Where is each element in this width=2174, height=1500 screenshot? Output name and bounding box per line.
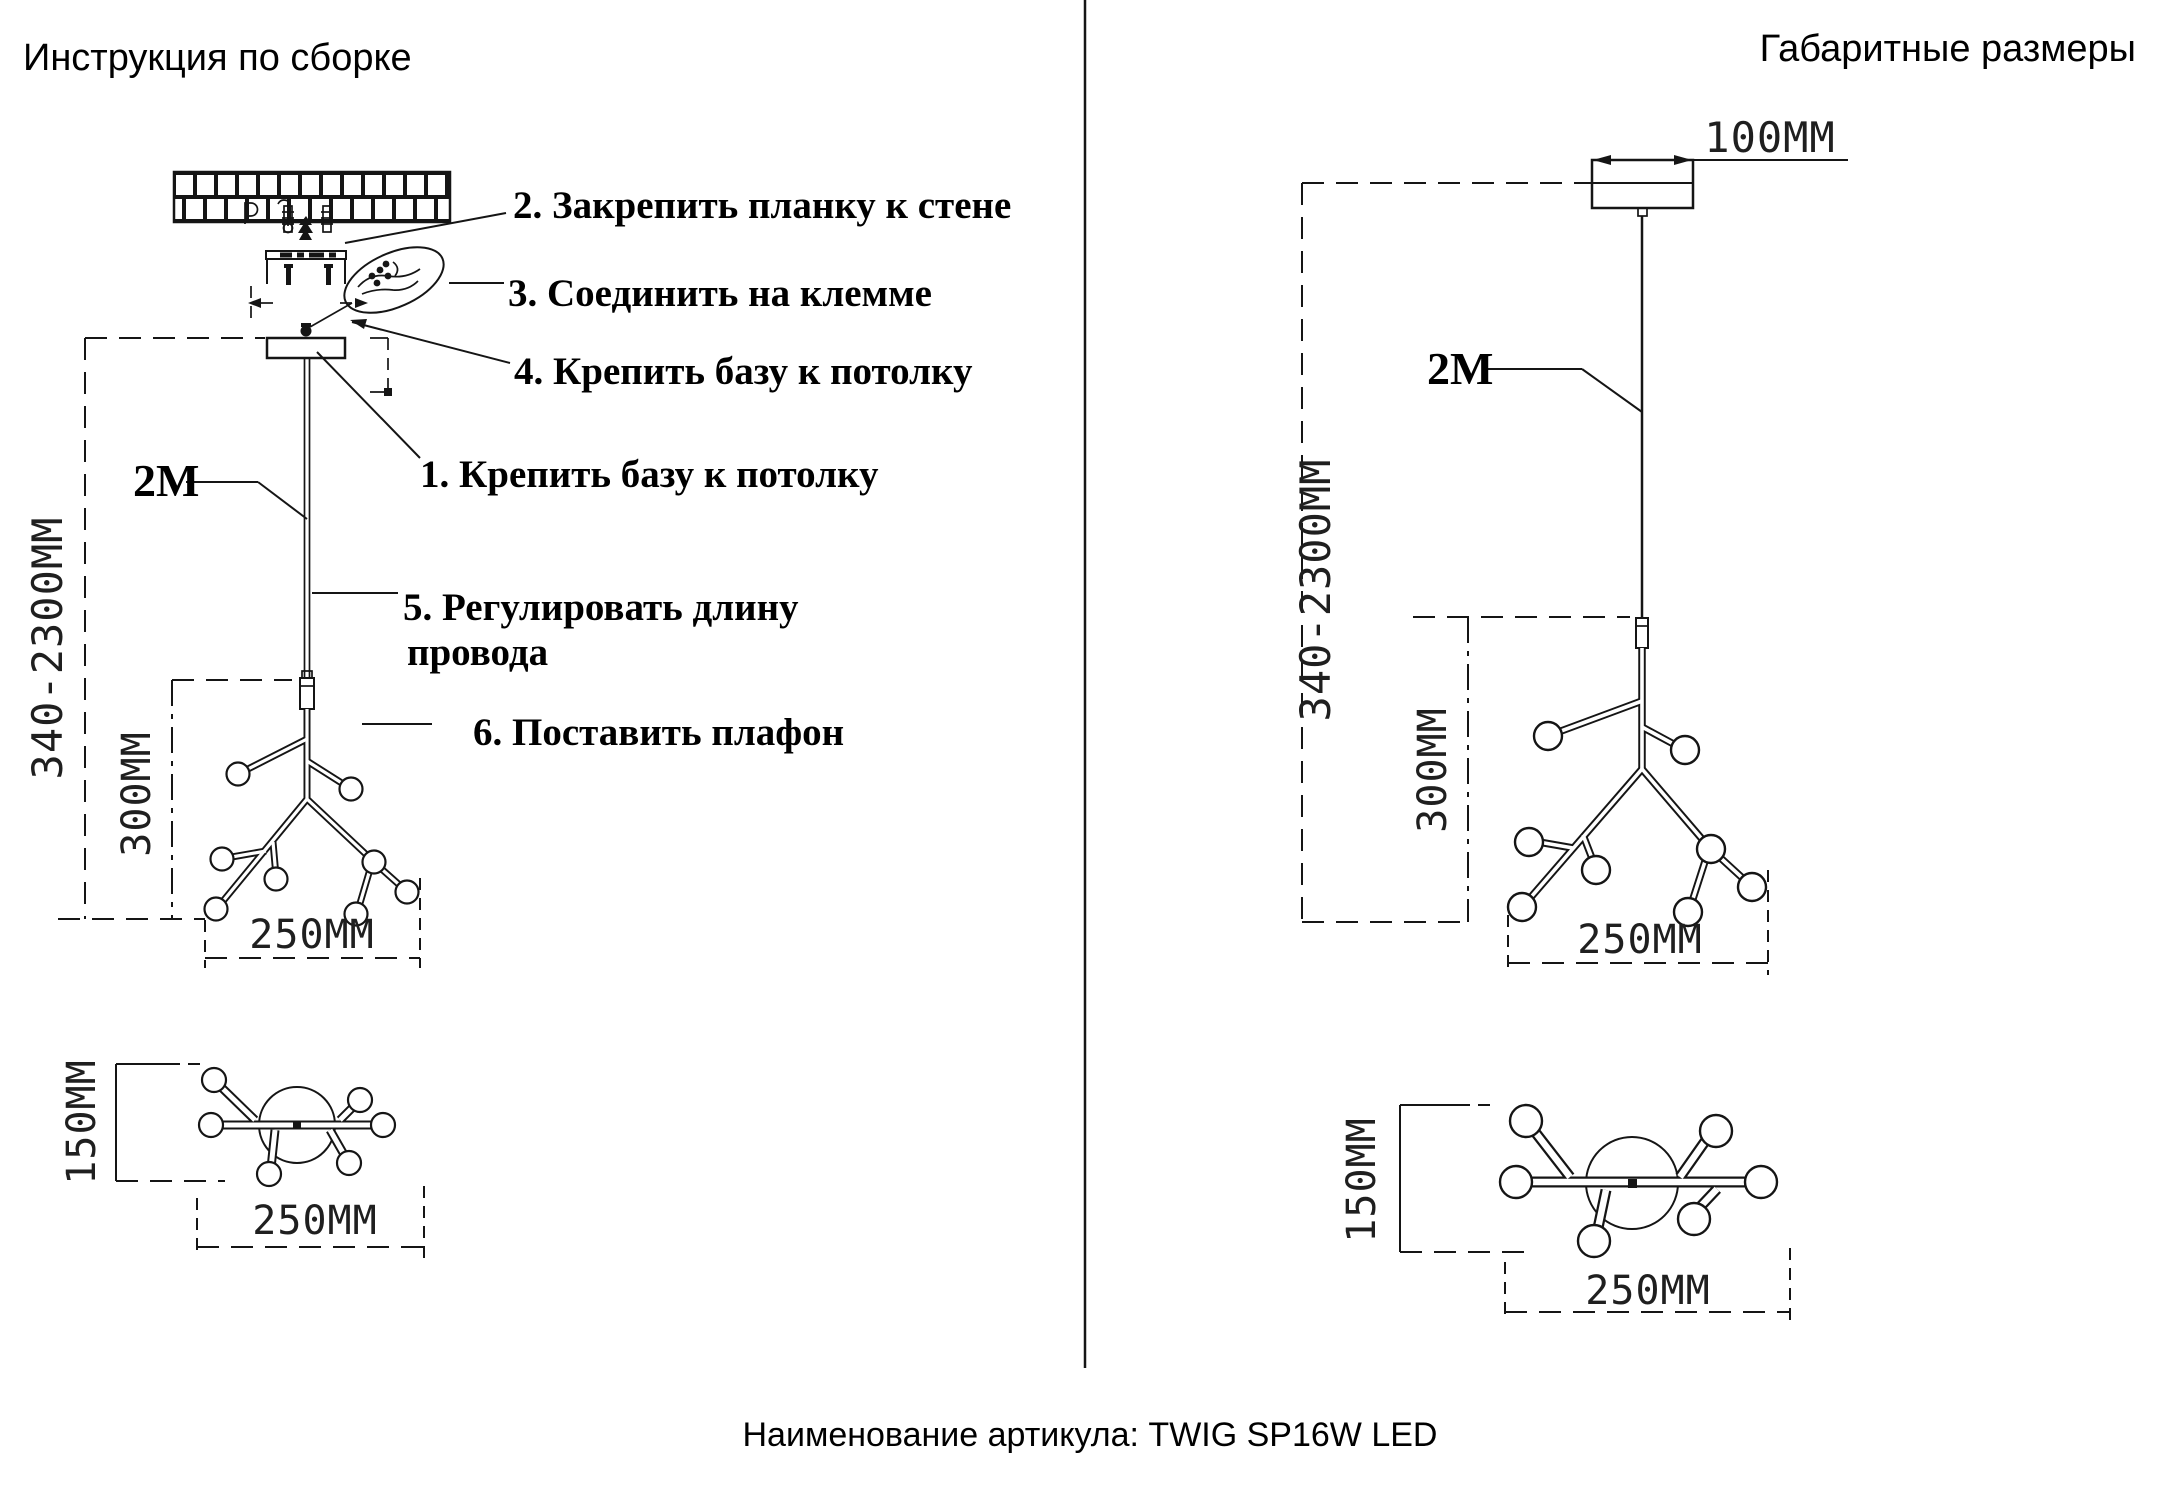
step-6-label: 6. Поставить плафон [473,711,844,754]
step-1-label: 1. Крепить базу к потолку [420,453,879,496]
left-height-range-label: 340-2300MM [23,517,72,780]
right-panel-title: Габаритные размеры [1760,28,2136,70]
article-name: Наименование артикула: TWIG SP16W LED [743,1416,1438,1454]
right-height-range-label: 340-2300MM [1291,459,1340,722]
base-side-bracket [370,338,392,396]
left-cable-length-label: 2M [133,455,199,506]
technical-drawing-canvas: Инструкция по сборке Габаритные размеры … [0,0,2174,1500]
mounting-strip [266,251,346,285]
left-top-view: 150MM 250MM [59,1059,424,1258]
step-4-label: 4. Крепить базу к потолку [514,350,973,393]
left-top-view-height-label: 150MM [59,1059,105,1184]
left-cluster-width-label: 250MM [249,912,374,958]
ceiling-brick-wall [174,172,450,222]
step-5-label-line2: провода [407,631,548,674]
left-assembly-diagram: 2. Закрепить планку к стене 3. Соединить… [23,172,1011,968]
terminal-bubble [310,234,453,327]
lamp-cluster-front-view [205,709,419,926]
right-top-view: 150MM 250MM [1339,1105,1790,1322]
canopy-width-label: 100MM [1704,113,1835,162]
right-top-view-height-label: 150MM [1339,1117,1385,1242]
right-dimension-diagram: 100MM 2M 34 [1291,113,1848,975]
step-5-label-line1: 5. Регулировать длину [403,586,799,629]
step-3-label: 3. Соединить на клемме [508,272,932,315]
left-cluster-height-label: 300MM [114,731,160,856]
instruction-sheet: Инструкция по сборке Габаритные размеры … [0,0,2174,1500]
suspension-rod [300,358,314,709]
left-top-view-width-label: 250MM [252,1198,377,1244]
right-cluster-height-label: 300MM [1410,707,1456,832]
right-lamp-cluster-front-view [1508,648,1766,926]
base-plate [267,338,345,358]
step-2-label: 2. Закрепить планку к стене [513,184,1011,227]
right-top-view-width-label: 250MM [1585,1268,1710,1314]
right-cluster-width-label: 250MM [1577,917,1702,963]
right-cable-length-label: 2M [1427,343,1493,394]
left-panel-title: Инструкция по сборке [23,37,412,79]
